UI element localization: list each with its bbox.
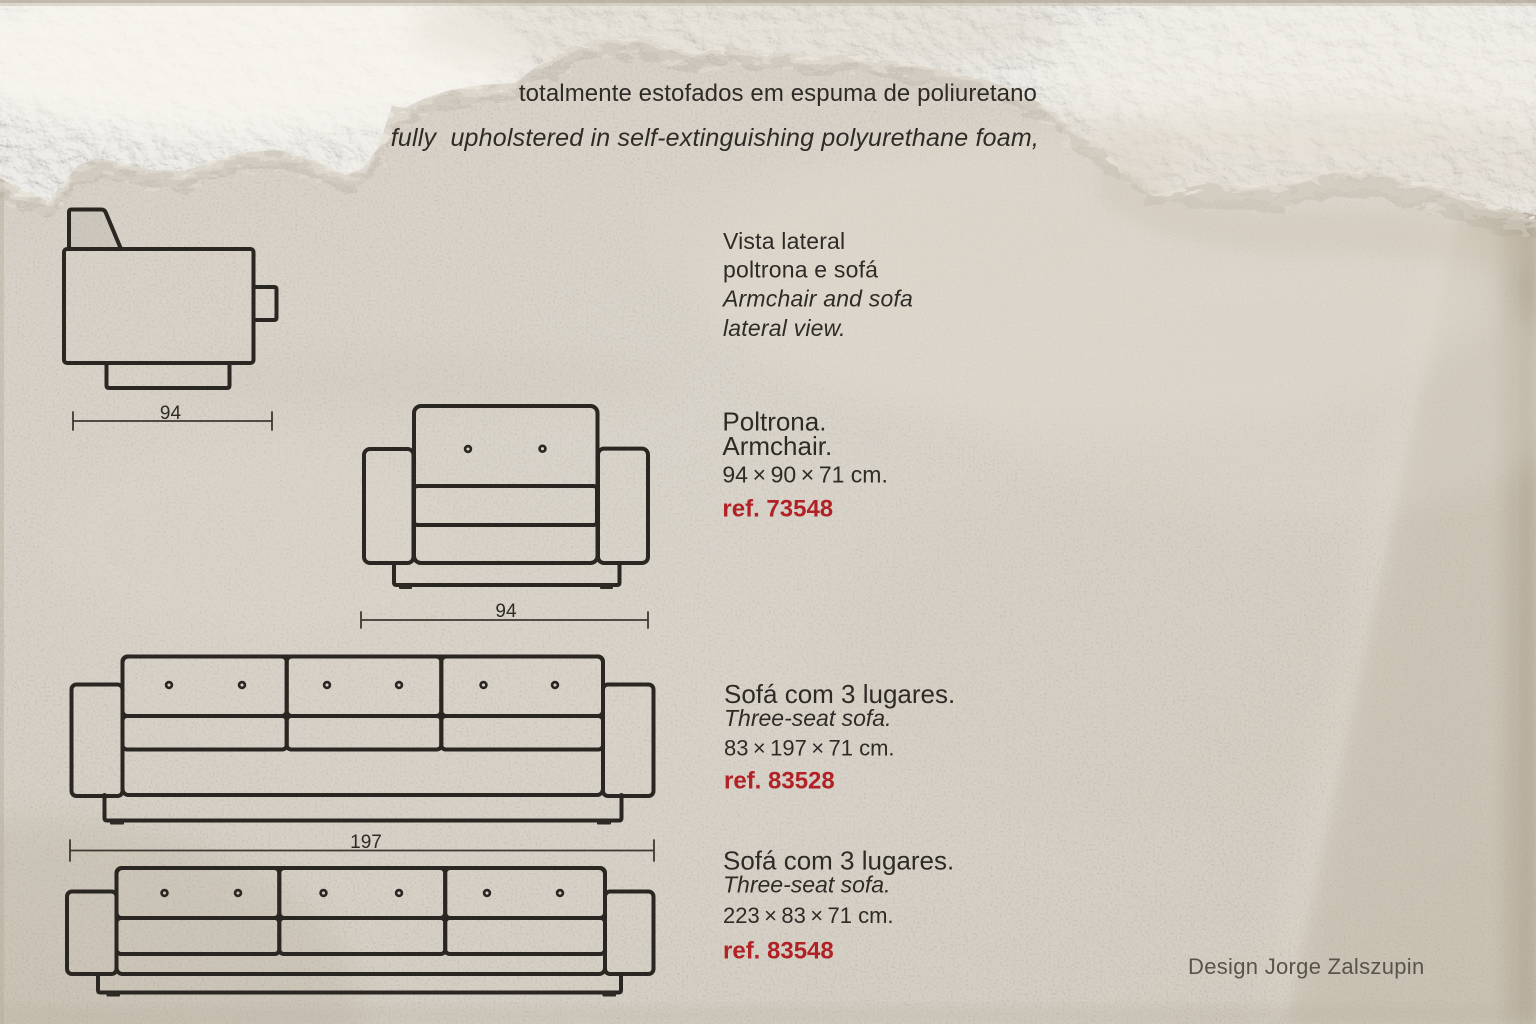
svg-text:94 × 90 × 71 cm.: 94 × 90 × 71 cm. (722, 462, 887, 488)
svg-text:ref. 83548: ref. 83548 (723, 938, 834, 965)
svg-text:ref. 83528: ref. 83528 (724, 768, 835, 795)
svg-text:ref. 73548: ref. 73548 (722, 495, 833, 522)
svg-text:94: 94 (495, 601, 517, 622)
svg-text:223 × 83 × 71 cm.: 223 × 83 × 71 cm. (723, 903, 894, 928)
svg-text:Three-seat sofa.: Three-seat sofa. (724, 705, 891, 731)
svg-text:94: 94 (160, 403, 182, 424)
svg-text:Vista lateral: Vista lateral (723, 228, 845, 254)
svg-text:197: 197 (350, 832, 382, 853)
svg-text:Armchair and sofa: Armchair and sofa (721, 285, 913, 311)
svg-text:totalmente estofados em espuma: totalmente estofados em espuma de poliur… (519, 80, 1037, 107)
svg-text:Armchair.: Armchair. (722, 431, 832, 461)
svg-text:fully upholstered in self-ext: fully upholstered in self-extinguishing … (391, 124, 1039, 152)
svg-text:Design Jorge Zalszupin: Design Jorge Zalszupin (1188, 954, 1425, 979)
svg-text:poltrona e sofá: poltrona e sofá (723, 257, 878, 283)
svg-text:83 × 197 × 71 cm.: 83 × 197 × 71 cm. (724, 736, 895, 761)
svg-text:lateral view.: lateral view. (723, 315, 846, 341)
svg-text:Three-seat sofa.: Three-seat sofa. (723, 871, 890, 897)
